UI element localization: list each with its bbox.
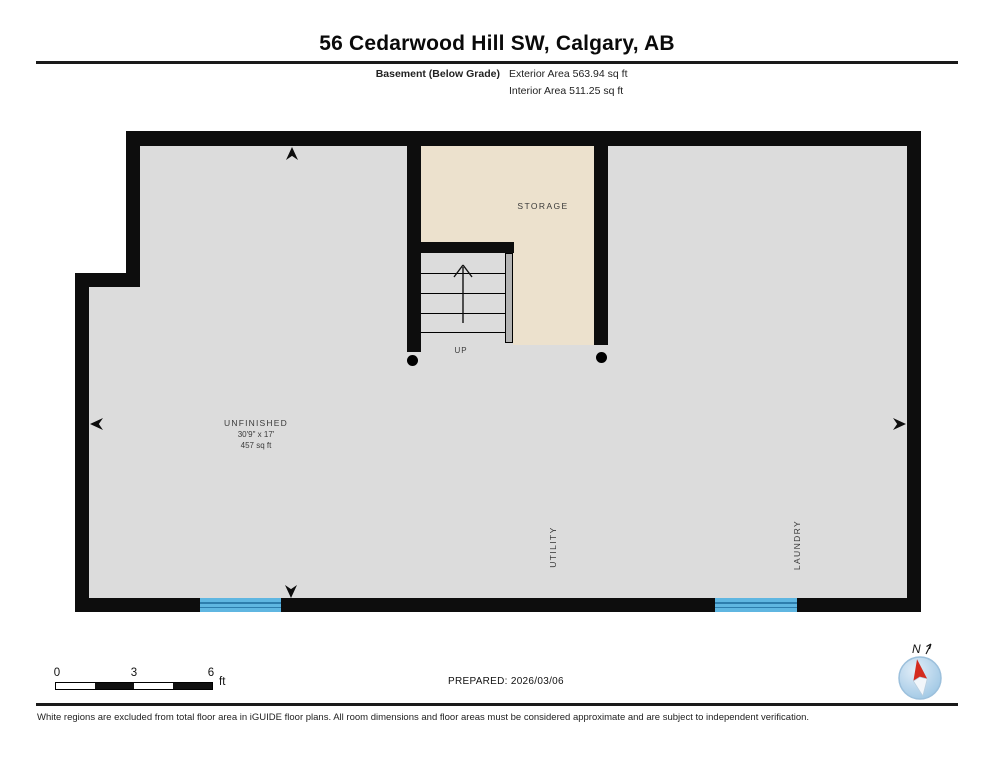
window-right — [715, 598, 797, 612]
wall-top — [126, 131, 921, 146]
wall-left-lower — [75, 273, 89, 612]
wall-end-dot-right — [596, 352, 607, 363]
prepared-date-label: PREPARED: 2026/03/06 — [448, 676, 564, 687]
compass-north-label: N — [912, 642, 921, 656]
disclaimer-text: White regions are excluded from total fl… — [37, 712, 967, 723]
footer-divider — [36, 703, 958, 706]
floorplan: UP STORAGE UNFINISHED 30'9" x 17' 457 sq… — [0, 0, 994, 768]
compass-north-arrow-icon — [926, 644, 931, 654]
wall-end-dot-left — [407, 355, 418, 366]
scale-tick-0: 0 — [54, 667, 60, 679]
storage-room-label: STORAGE — [517, 201, 568, 211]
window-pane-line — [200, 607, 281, 609]
stair-direction-arrow — [421, 253, 505, 332]
compass-rose: N — [893, 639, 949, 703]
scale-bar — [55, 682, 213, 690]
wall-stair-top — [407, 242, 514, 253]
scale-segment — [134, 683, 173, 689]
wall-storage-right — [594, 146, 608, 345]
window-left — [200, 598, 281, 612]
left-notch-floor-area — [89, 287, 140, 598]
room-area: 457 sq ft — [194, 441, 318, 450]
wall-right — [907, 131, 921, 612]
room-dimensions: 30'9" x 17' — [194, 430, 318, 439]
scale-unit-label: ft — [219, 676, 225, 688]
scale-tick-3: 3 — [131, 667, 137, 679]
scale-segment — [56, 683, 95, 689]
room-name: UNFINISHED — [194, 418, 318, 428]
scale-segment — [95, 683, 134, 689]
stair-handrail — [505, 253, 513, 343]
utility-room-label: UTILITY — [548, 526, 558, 567]
staircase — [421, 253, 505, 333]
scale-tick-6: 6 — [208, 667, 214, 679]
window-pane-line — [715, 602, 797, 604]
stairs-up-label: UP — [445, 346, 477, 355]
window-pane-line — [200, 602, 281, 604]
unfinished-room-label: UNFINISHED 30'9" x 17' 457 sq ft — [194, 418, 318, 450]
wall-left-upper — [126, 131, 140, 287]
window-pane-line — [715, 607, 797, 609]
laundry-room-label: LAUNDRY — [792, 520, 802, 570]
scale-segment — [173, 683, 212, 689]
